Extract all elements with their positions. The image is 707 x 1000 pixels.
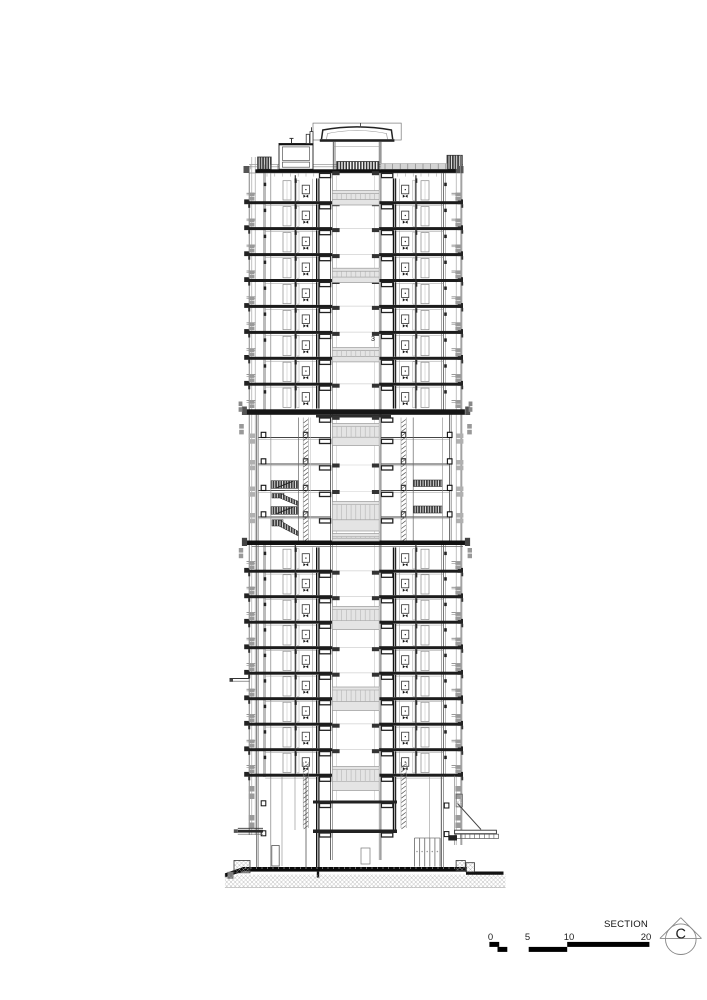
svg-text:C: C [676, 927, 686, 943]
svg-text:10: 10 [564, 932, 575, 943]
svg-text:5: 5 [525, 932, 530, 943]
svg-text:3: 3 [371, 336, 375, 343]
svg-text:0: 0 [488, 932, 493, 943]
svg-text:SECTION: SECTION [604, 919, 648, 930]
svg-text:20: 20 [641, 932, 652, 943]
